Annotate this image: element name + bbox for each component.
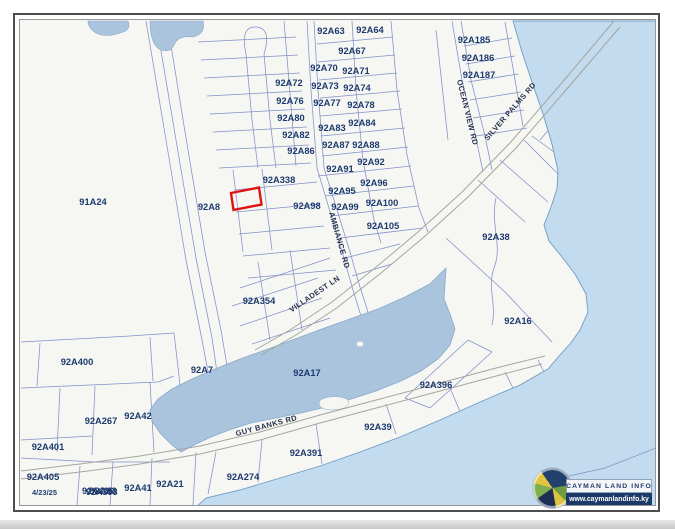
parcel-label-92A21[interactable]: 92A21 [156, 479, 183, 489]
parcel-label-91A24[interactable]: 91A24 [79, 197, 107, 207]
logo-url[interactable]: www.caymanlandinfo.ky [566, 493, 652, 505]
parcel-label-92A98[interactable]: 92A98 [293, 201, 320, 211]
parcel-label-92A100[interactable]: 92A100 [366, 198, 399, 208]
parcel-label-92A87[interactable]: 92A87 [322, 140, 349, 150]
parcel-label-92A96[interactable]: 92A96 [360, 178, 387, 188]
overlapping-parcel-label-2: 92A398 [86, 487, 118, 497]
parcel-label-92A82[interactable]: 92A82 [282, 130, 309, 140]
parcel-label-92A84[interactable]: 92A84 [348, 118, 376, 128]
parcel-label-92A76[interactable]: 92A76 [276, 96, 303, 106]
parcel-label-92A86[interactable]: 92A86 [287, 146, 314, 156]
parcel-label-92A64[interactable]: 92A64 [356, 25, 384, 35]
parcel-label-92A187[interactable]: 92A187 [463, 70, 496, 80]
parcel-label-92A91[interactable]: 92A91 [326, 164, 353, 174]
parcel-label-92A16[interactable]: 92A16 [504, 316, 531, 326]
date-stamp: 4/23/25 [32, 488, 57, 497]
parcel-label-92A185[interactable]: 92A185 [458, 35, 491, 45]
logo-title: CAYMAN LAND INFO [566, 479, 652, 493]
cadastral-map[interactable]: 92A6392A6492A6792A7092A7192A7292A7392A74… [0, 0, 675, 529]
parcel-label-92A267[interactable]: 92A267 [85, 416, 118, 426]
parcel-label-92A400[interactable]: 92A400 [61, 357, 94, 367]
parcel-label-92A74[interactable]: 92A74 [343, 83, 371, 93]
parcel-label-92A338[interactable]: 92A338 [263, 175, 296, 185]
parcel-label-92A41[interactable]: 92A41 [124, 483, 151, 493]
parcel-label-92A396[interactable]: 92A396 [420, 380, 453, 390]
parcel-label-92A92[interactable]: 92A92 [357, 157, 384, 167]
parcel-label-92A39[interactable]: 92A39 [364, 422, 391, 432]
parcel-label-92A70[interactable]: 92A70 [310, 63, 337, 73]
window-bottom-edge [0, 520, 675, 529]
parcel-label-92A71[interactable]: 92A71 [342, 66, 369, 76]
parcel-label-92A401[interactable]: 92A401 [32, 442, 65, 452]
parcel-label-92A186[interactable]: 92A186 [462, 53, 495, 63]
parcel-label-92A391[interactable]: 92A391 [290, 448, 323, 458]
parcel-label-92A77[interactable]: 92A77 [313, 98, 340, 108]
parcel-label-92A95[interactable]: 92A95 [328, 186, 355, 196]
parcel-label-92A354[interactable]: 92A354 [243, 296, 276, 306]
parcel-label-92A72[interactable]: 92A72 [275, 78, 302, 88]
parcel-label-92A105[interactable]: 92A105 [367, 221, 400, 231]
parcel-label-92A88[interactable]: 92A88 [352, 140, 379, 150]
parcel-label-92A274[interactable]: 92A274 [227, 472, 260, 482]
parcel-label-92A405[interactable]: 92A405 [27, 472, 60, 482]
screenshot-root: { "window": { "date_stamp": "4/23/25", "… [0, 0, 675, 529]
pond-island [356, 341, 364, 347]
parcel-label-92A17[interactable]: 92A17 [293, 368, 320, 378]
parcel-label-92A7[interactable]: 92A7 [191, 365, 213, 375]
parcel-label-92A42[interactable]: 92A42 [124, 411, 151, 421]
parcel-label-92A73[interactable]: 92A73 [311, 81, 338, 91]
parcel-label-92A8[interactable]: 92A8 [198, 202, 220, 212]
parcel-label-92A67[interactable]: 92A67 [338, 46, 365, 56]
parcel-label-92A80[interactable]: 92A80 [277, 113, 304, 123]
parcel-label-92A78[interactable]: 92A78 [347, 100, 374, 110]
parcel-label-92A83[interactable]: 92A83 [318, 123, 345, 133]
parcel-label-92A38[interactable]: 92A38 [482, 232, 509, 242]
parcel-label-92A63[interactable]: 92A63 [317, 26, 344, 36]
